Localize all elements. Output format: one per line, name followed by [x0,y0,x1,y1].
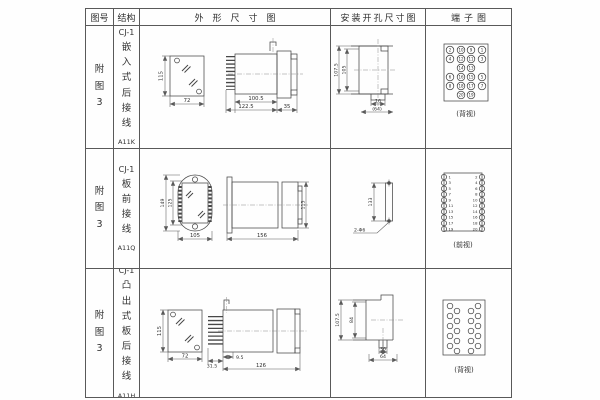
outline-cell-row3: 115 72 31.5 9 [140,269,331,397]
header-terminal: 端子图 [426,9,511,26]
svg-text:19: 19 [449,226,454,231]
svg-text:7: 7 [449,192,452,197]
terminal-numbers: 21091 412113 1413 616155 818177 2019 [449,47,484,97]
front-view [168,310,202,352]
header-install-label: 安装开孔尺寸图 [338,11,417,24]
terminals [447,303,481,354]
install-dimensions: 133 2-Φ6 [353,183,388,234]
structure-code: A11H [118,392,136,397]
dim-front-width: 72 [184,98,191,104]
dim-outer-height: 107.5 [335,313,341,326]
screw-hatch [182,65,191,73]
svg-text:6: 6 [449,74,452,79]
header-structure: 结构 [114,9,140,26]
dim-body-height: 115 [301,201,307,210]
front-dimensions: 149 125 105 [160,175,212,241]
front-dimensions: 115 72 [157,310,202,362]
svg-text:9: 9 [449,197,452,202]
mounting-hole [197,89,202,94]
svg-text:8: 8 [475,192,478,197]
install-cell-row2: 133 2-Φ6 [331,149,426,269]
svg-text:3: 3 [449,180,452,185]
structure-cell-row1: CJ-1 嵌入式后接线 A11K [114,26,140,149]
side-dimensions: 156 115 [227,182,309,241]
dim-inner-height: 84 [349,317,355,323]
front-view [170,56,204,96]
side-dimensions: 31.5 9.5 126 [207,348,300,371]
screw-hatch [186,191,193,198]
svg-text:10: 10 [458,47,464,52]
structure-model: CJ-1 [119,165,135,174]
terminal-numbers: 12 34 56 78 910 1112 1314 1516 1718 1920 [449,174,479,231]
dim-inner-height: 125 [168,199,174,208]
install-dimensions: 107.5 105 16 (64) [334,46,394,113]
terminal-cell-row1: 21091 412113 1413 616155 818177 2019 (背视… [426,26,511,149]
dim-outer-height: 149 [160,199,166,208]
dim-slot-width: 36 [380,346,386,352]
dim-body-length: 126 [256,363,267,369]
structure-row2: CJ-1 板前接线 A11Q [118,165,136,253]
outline-cell-row2: 149 125 105 156 [140,149,331,269]
svg-text:4: 4 [449,56,452,61]
mounting-hole [195,345,200,350]
install-cell-row1: 107.5 105 16 (64) [331,26,426,149]
terminal-cell-row3: (背视) [426,269,511,397]
svg-text:20: 20 [458,92,464,97]
dim-inner-height: 105 [342,66,348,75]
svg-text:3: 3 [481,56,484,61]
svg-text:13: 13 [449,209,454,214]
view-label: (背视) [454,365,474,374]
structure-desc: 凸出式板后接线 [120,278,132,384]
svg-text:16: 16 [473,215,478,220]
cutout-outline [353,295,403,354]
structure-desc: 嵌入式后接线 [120,40,132,131]
svg-text:11: 11 [449,203,454,208]
dim-cutout-width: (64) [372,107,382,113]
terminal-cell-row2: 12 34 56 78 910 1112 1314 1516 1718 1920… [426,149,511,269]
side-view [216,297,309,353]
structure-model: CJ-1 [119,269,135,275]
mounting-hole [171,312,176,317]
outline-drawing-a11k: 115 72 100.5 [140,26,330,148]
structure-row3: CJ-1 凸出式板后接线 A11H [118,269,136,397]
view-label: (背视) [456,109,476,118]
side-view [223,177,308,233]
install-drawing-a11q: 133 2-Φ6 [331,149,425,268]
screw-hatch [198,211,205,218]
hole-note: 2-Φ6 [354,228,365,234]
install-drawing-a11h: 107.5 84 36 64 [331,270,425,397]
svg-text:5: 5 [449,186,452,191]
structure-code: A11K [118,138,135,146]
svg-text:13: 13 [468,65,474,70]
terminal-block [444,44,488,101]
svg-text:1: 1 [481,47,484,52]
dim-body-length: 100.5 [248,96,263,102]
svg-text:12: 12 [473,203,478,208]
header-structure-label: 结构 [117,11,135,24]
drawing-table: 图号 结构 外形尺寸图 安装开孔尺寸图 端子图 附图3 CJ-1 嵌入式后接线 … [85,8,512,398]
mounting-hole [175,58,180,63]
install-drawing-a11k: 107.5 105 16 (64) [331,26,425,148]
svg-text:17: 17 [468,83,474,88]
dim-front-height: 115 [159,71,165,81]
dim-offset: 9.5 [236,355,243,361]
datasheet-page: 图号 结构 外形尺寸图 安装开孔尺寸图 端子图 附图3 CJ-1 嵌入式后接线 … [0,0,600,400]
side-view [228,38,303,98]
outline-drawing-a11q: 149 125 105 156 [140,149,330,268]
svg-text:15: 15 [449,215,454,220]
screw-hatch [176,318,185,326]
svg-text:20: 20 [473,226,478,231]
dim-flange-depth: 35 [284,104,291,110]
structure-cell-row3: CJ-1 凸出式板后接线 A11H [114,269,140,397]
dim-outer-height: 107.5 [334,63,340,76]
svg-text:5: 5 [481,74,484,79]
svg-text:12: 12 [458,56,464,61]
outline-cell-row1: 115 72 100.5 [140,26,331,149]
svg-text:1: 1 [449,174,452,179]
svg-text:18: 18 [473,221,478,226]
terminal-diagram-a11q: 12 34 56 78 910 1112 1314 1516 1718 1920… [426,149,511,268]
structure-row1: CJ-1 嵌入式后接线 A11K [118,28,135,146]
dim-slot-width: 16 [375,99,381,105]
drill-holes [386,180,393,225]
header-outline-label: 外形尺寸图 [185,11,284,24]
header-install: 安装开孔尺寸图 [331,9,426,26]
dim-front-width: 72 [182,353,189,359]
side-dimensions: 100.5 122.5 35 [226,90,297,113]
dim-pin-length: 31.5 [207,363,217,369]
structure-model: CJ-1 [119,28,135,37]
dim-cutout-width: 64 [380,354,386,360]
dim-hole-pitch: 133 [368,198,374,207]
view-label: (前视) [453,240,473,249]
terminals [446,46,486,99]
terminal-diagram-a11k: 21091 412113 1413 616155 818177 2019 (背视… [426,26,511,148]
terminal-block [443,300,485,355]
svg-text:4: 4 [475,180,478,185]
outline-drawing-a11h: 115 72 31.5 9 [140,270,330,397]
dim-front-height: 115 [157,325,163,335]
figure-cell-row1: 附图3 [86,26,114,149]
structure-desc: 板前接线 [121,177,133,238]
screw-hatch [185,335,194,343]
svg-text:14: 14 [458,65,464,70]
install-cell-row3: 107.5 84 36 64 [331,269,426,397]
figure-cell-row2: 附图3 [86,149,114,269]
structure-code: A11Q [118,244,136,252]
mounting-hole [192,177,197,182]
svg-text:2: 2 [449,47,452,52]
terminal-diagram-a11h: (背视) [426,270,511,397]
svg-text:8: 8 [449,83,452,88]
svg-text:9: 9 [470,47,473,52]
svg-text:6: 6 [475,186,478,191]
screw-hatch [189,79,198,87]
header-figure-label: 图号 [90,11,108,24]
dim-front-width: 105 [190,233,200,239]
header-figure: 图号 [86,9,114,26]
header-outline: 外形尺寸图 [140,9,331,26]
figure-cell-row3: 附图3 [86,269,114,397]
svg-text:7: 7 [481,83,484,88]
front-view [178,175,212,231]
header-terminal-label: 端子图 [447,11,490,24]
svg-text:18: 18 [458,83,464,88]
svg-text:11: 11 [468,56,474,61]
svg-text:19: 19 [468,92,474,97]
svg-text:17: 17 [449,221,454,226]
mounting-hole [192,224,197,229]
figure-number: 附图3 [93,308,106,358]
svg-text:10: 10 [473,197,478,202]
dim-total-length: 122.5 [238,104,253,110]
svg-text:2: 2 [475,174,478,179]
svg-text:16: 16 [458,74,464,79]
figure-number: 附图3 [93,62,106,112]
svg-text:14: 14 [473,209,478,214]
svg-text:15: 15 [468,74,474,79]
dim-total-length: 156 [257,233,268,239]
structure-cell-row2: CJ-1 板前接线 A11Q [114,149,140,269]
figure-number: 附图3 [93,184,106,234]
